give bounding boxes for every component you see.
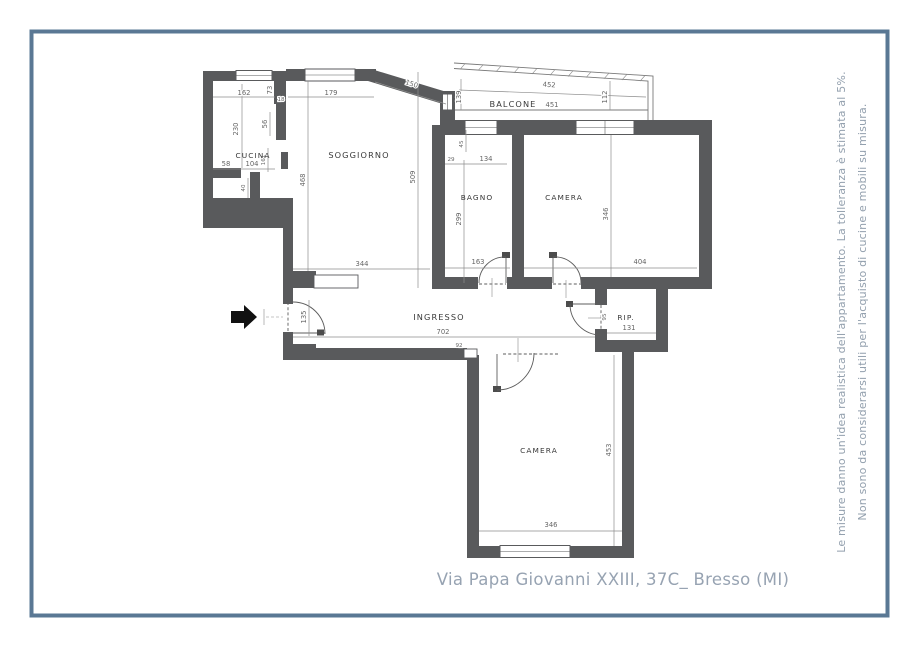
bedroom-bottom-door [493, 353, 560, 392]
dim-509: 509 [409, 171, 417, 184]
balcony-railing [454, 63, 653, 120]
bedroom-bottom-window [500, 546, 570, 558]
dim-702: 702 [437, 328, 450, 336]
dim-162: 162 [238, 89, 251, 97]
room-label-soggiorno: SOGGIORNO [328, 150, 389, 160]
dim-452: 452 [542, 81, 556, 90]
dim-346-camera-bottom: 346 [545, 521, 558, 529]
dim-451: 451 [546, 101, 559, 109]
floor-plan-canvas: 162 73 179 150 452 451 139 112 230 56 18… [0, 0, 920, 648]
dim-95: 95 [602, 313, 608, 321]
dim-453: 453 [605, 444, 613, 457]
dim-346-camera-top: 346 [602, 208, 610, 221]
dim-179: 179 [325, 89, 338, 97]
dim-134: 134 [480, 155, 493, 163]
dim-40: 40 [241, 184, 247, 192]
room-label-bagno: BAGNO [461, 193, 494, 202]
dim-468: 468 [299, 174, 307, 187]
dim-92: 92 [455, 343, 462, 349]
dim-104: 104 [246, 160, 259, 168]
dim-18: 18 [277, 97, 285, 103]
hall-closet [314, 275, 358, 288]
dim-344: 344 [356, 260, 369, 268]
dim-135: 135 [300, 311, 308, 324]
living-room-window [305, 69, 355, 81]
room-label-balcone: BALCONE [490, 99, 537, 109]
room-label-ripostiglio: RIP. [617, 313, 634, 322]
dim-112: 112 [601, 91, 609, 104]
dim-299: 299 [455, 213, 463, 226]
address-caption: Via Papa Giovanni XXIII, 37C_ Bresso (MI… [437, 570, 790, 590]
dim-404: 404 [634, 258, 647, 266]
dim-45: 45 [459, 140, 465, 148]
bathroom-window [465, 121, 497, 135]
room-label-cucina: CUCINA [235, 151, 270, 160]
dim-73: 73 [266, 86, 274, 95]
corner-window [443, 94, 453, 110]
room-label-camera-top: CAMERA [545, 193, 583, 202]
dim-131: 131 [623, 324, 636, 332]
room-label-ingresso: INGRESSO [413, 312, 464, 322]
room-label-camera-bottom: CAMERA [520, 446, 558, 455]
dim-29: 29 [447, 157, 455, 163]
dim-58: 58 [222, 160, 231, 168]
dim-163: 163 [472, 258, 485, 266]
bedroom-top-window [576, 121, 634, 135]
kitchen-window [236, 71, 272, 81]
page-border-frame [32, 32, 888, 616]
dim-139: 139 [455, 91, 463, 104]
dim-230: 230 [232, 123, 240, 136]
disclaimer-line-2: Non sono da considerarsi utili per l'acq… [856, 103, 869, 520]
entrance-arrow-icon [231, 305, 257, 329]
wall-niche [464, 349, 477, 358]
disclaimer-line-1: Le misure danno un'idea realistica dell'… [835, 71, 848, 553]
floor-plan-page: 162 73 179 150 452 451 139 112 230 56 18… [0, 0, 920, 648]
dim-56: 56 [261, 120, 269, 129]
